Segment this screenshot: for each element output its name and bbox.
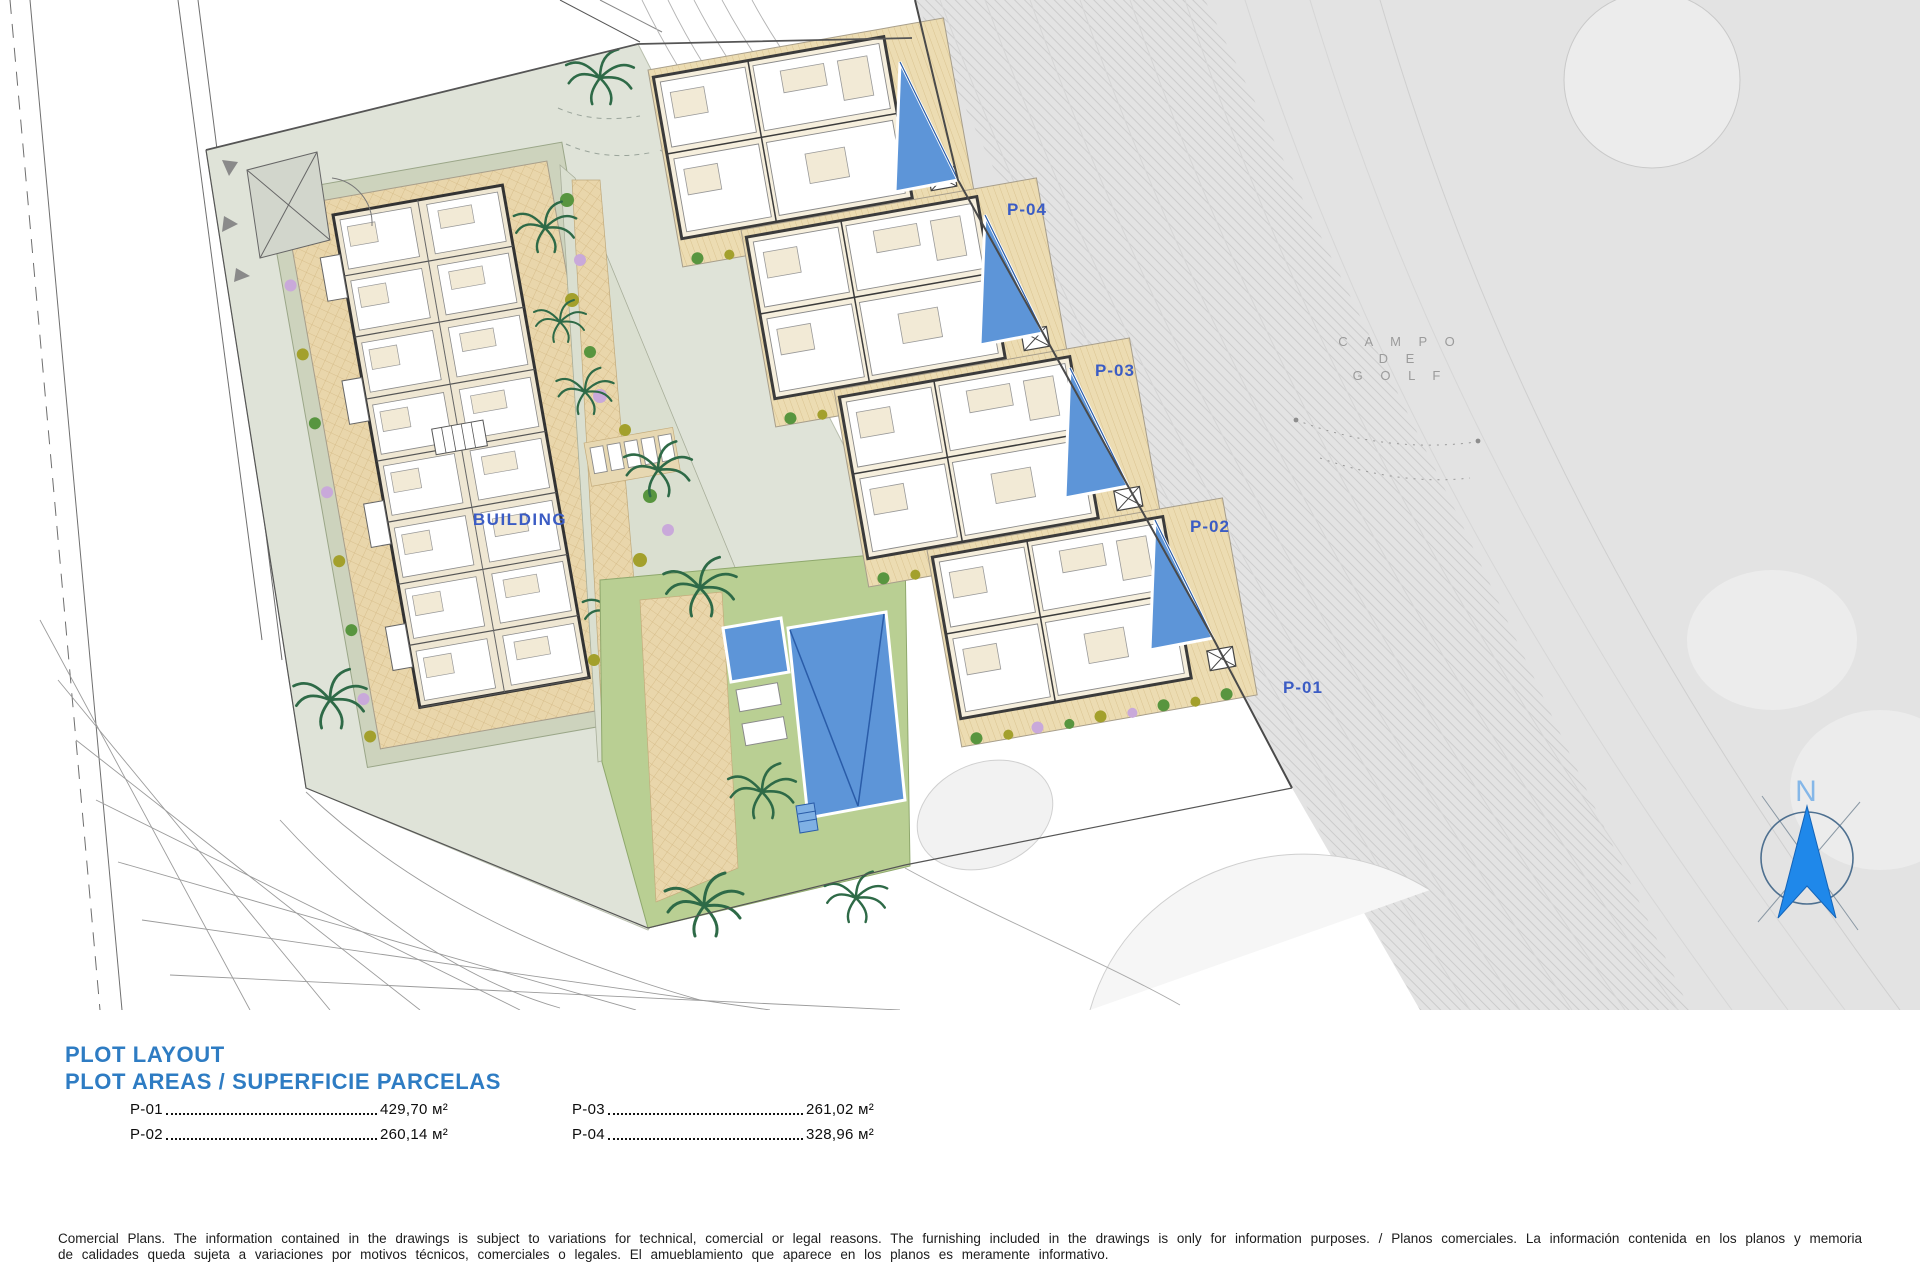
plot-area-value: 260,14 м² xyxy=(380,1126,448,1143)
dotted-leader xyxy=(166,1137,377,1140)
plot-area-value: 261,02 м² xyxy=(806,1101,874,1118)
pool-steps xyxy=(796,803,818,833)
plot-layout-title: PLOT LAYOUT xyxy=(65,1042,225,1068)
plot-area-row-p03: P-03 261,02 м² xyxy=(572,1101,874,1118)
plot-areas-title: PLOT AREAS / SUPERFICIE PARCELAS xyxy=(65,1069,501,1095)
plot-area-row-p02: P-02 260,14 м² xyxy=(130,1126,448,1143)
golf-course-label: C A M P O xyxy=(1338,334,1461,349)
site-plan: C A M P O D E G O L F xyxy=(0,0,1920,1010)
plot-area-row-p01: P-01 429,70 м² xyxy=(130,1101,448,1118)
plot-area-value: 328,96 м² xyxy=(806,1126,874,1143)
site-plan-svg: C A M P O D E G O L F xyxy=(0,0,1920,1010)
plot-area-value: 429,70 м² xyxy=(380,1101,448,1118)
golf-course-label: D E xyxy=(1379,351,1422,366)
dotted-leader xyxy=(608,1112,803,1115)
main-pool xyxy=(788,612,905,818)
plot-areas-column-1: P-01 429,70 м² P-02 260,14 м² xyxy=(130,1101,448,1143)
plot-label-p04: P-04 xyxy=(1007,200,1047,219)
small-pool xyxy=(723,618,789,682)
plot-label-p02: P-02 xyxy=(1190,517,1230,536)
plot-area-label: P-01 xyxy=(130,1101,163,1118)
disclaimer-text: Comercial Plans. The information contain… xyxy=(58,1231,1862,1263)
dotted-leader xyxy=(166,1112,377,1115)
plot-areas-column-2: P-03 261,02 м² P-04 328,96 м² xyxy=(572,1101,874,1143)
building-label: BUILDING xyxy=(473,510,567,529)
plot-area-label: P-02 xyxy=(130,1126,163,1143)
plot-layout-page: C A M P O D E G O L F xyxy=(0,0,1920,1280)
plot-area-row-p04: P-04 328,96 м² xyxy=(572,1126,874,1143)
plot-label-p03: P-03 xyxy=(1095,361,1135,380)
golf-course-label: G O L F xyxy=(1353,368,1448,383)
plot-area-label: P-04 xyxy=(572,1126,605,1143)
golf-clearing-blob xyxy=(1564,0,1740,168)
plot-label-p01: P-01 xyxy=(1283,678,1323,697)
north-label: N xyxy=(1795,775,1817,808)
dotted-leader xyxy=(608,1137,803,1140)
plot-area-label: P-03 xyxy=(572,1101,605,1118)
